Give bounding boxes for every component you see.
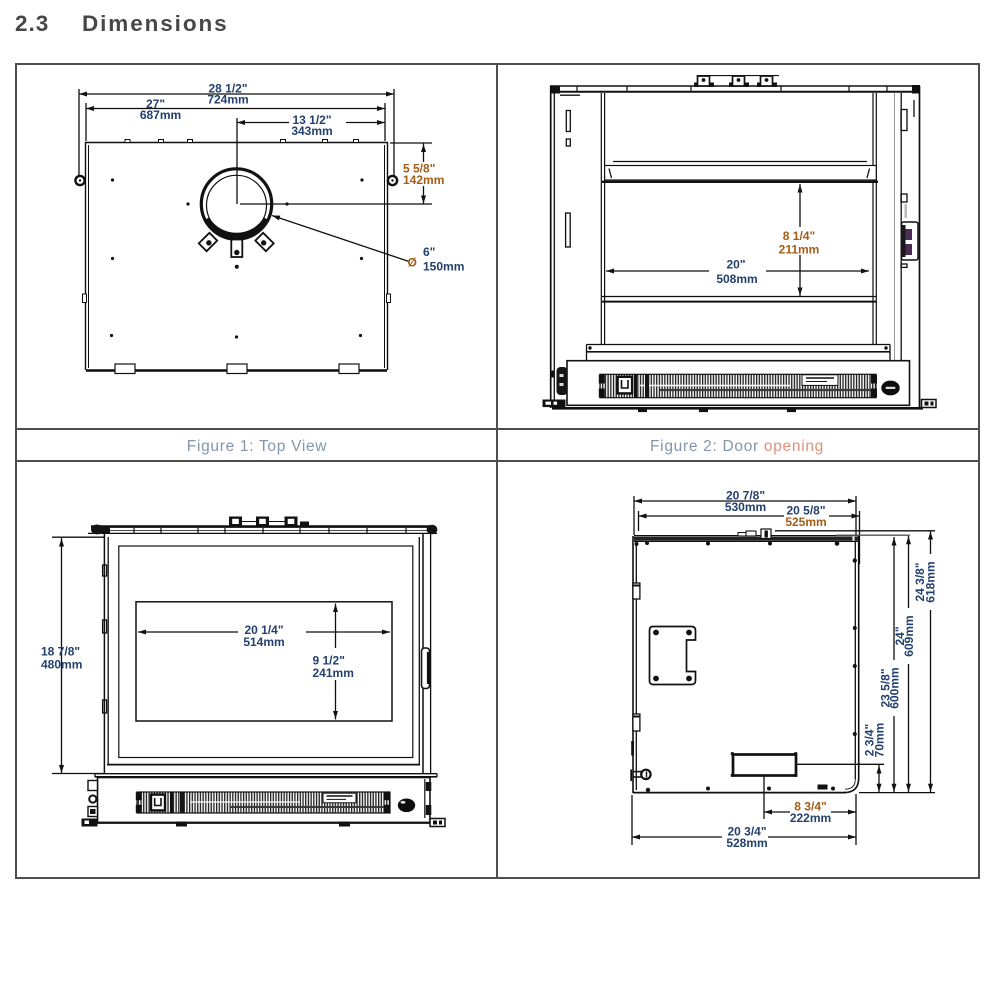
- svg-text:150mm: 150mm: [423, 260, 464, 274]
- svg-text:514mm: 514mm: [243, 635, 284, 649]
- svg-text:142mm: 142mm: [403, 173, 444, 187]
- svg-text:20": 20": [726, 258, 745, 272]
- svg-text:525mm: 525mm: [785, 515, 826, 529]
- svg-text:600mm: 600mm: [888, 667, 902, 708]
- svg-text:687mm: 687mm: [140, 108, 181, 122]
- svg-text:18 7/8": 18 7/8": [41, 645, 80, 659]
- svg-text:480mm: 480mm: [41, 658, 82, 672]
- svg-text:Figure 2: Door opening: Figure 2: Door opening: [650, 438, 824, 455]
- svg-text:508mm: 508mm: [716, 272, 757, 286]
- svg-text:8 1/4": 8 1/4": [783, 229, 815, 243]
- svg-text:2.3: 2.3: [15, 11, 49, 36]
- svg-text:528mm: 528mm: [726, 836, 767, 850]
- svg-text:Dimensions: Dimensions: [82, 11, 229, 36]
- svg-text:70mm: 70mm: [873, 723, 887, 758]
- svg-text:530mm: 530mm: [725, 500, 766, 514]
- svg-text:211mm: 211mm: [779, 243, 820, 257]
- svg-text:343mm: 343mm: [291, 124, 332, 138]
- svg-text:6": 6": [423, 245, 435, 259]
- svg-text:609mm: 609mm: [902, 615, 916, 656]
- svg-text:618mm: 618mm: [924, 561, 938, 602]
- svg-text:Ø: Ø: [408, 256, 417, 270]
- svg-text:724mm: 724mm: [207, 93, 248, 107]
- svg-text:241mm: 241mm: [313, 666, 354, 680]
- svg-text:Figure 1: Top View: Figure 1: Top View: [187, 438, 328, 455]
- svg-text:222mm: 222mm: [790, 811, 831, 825]
